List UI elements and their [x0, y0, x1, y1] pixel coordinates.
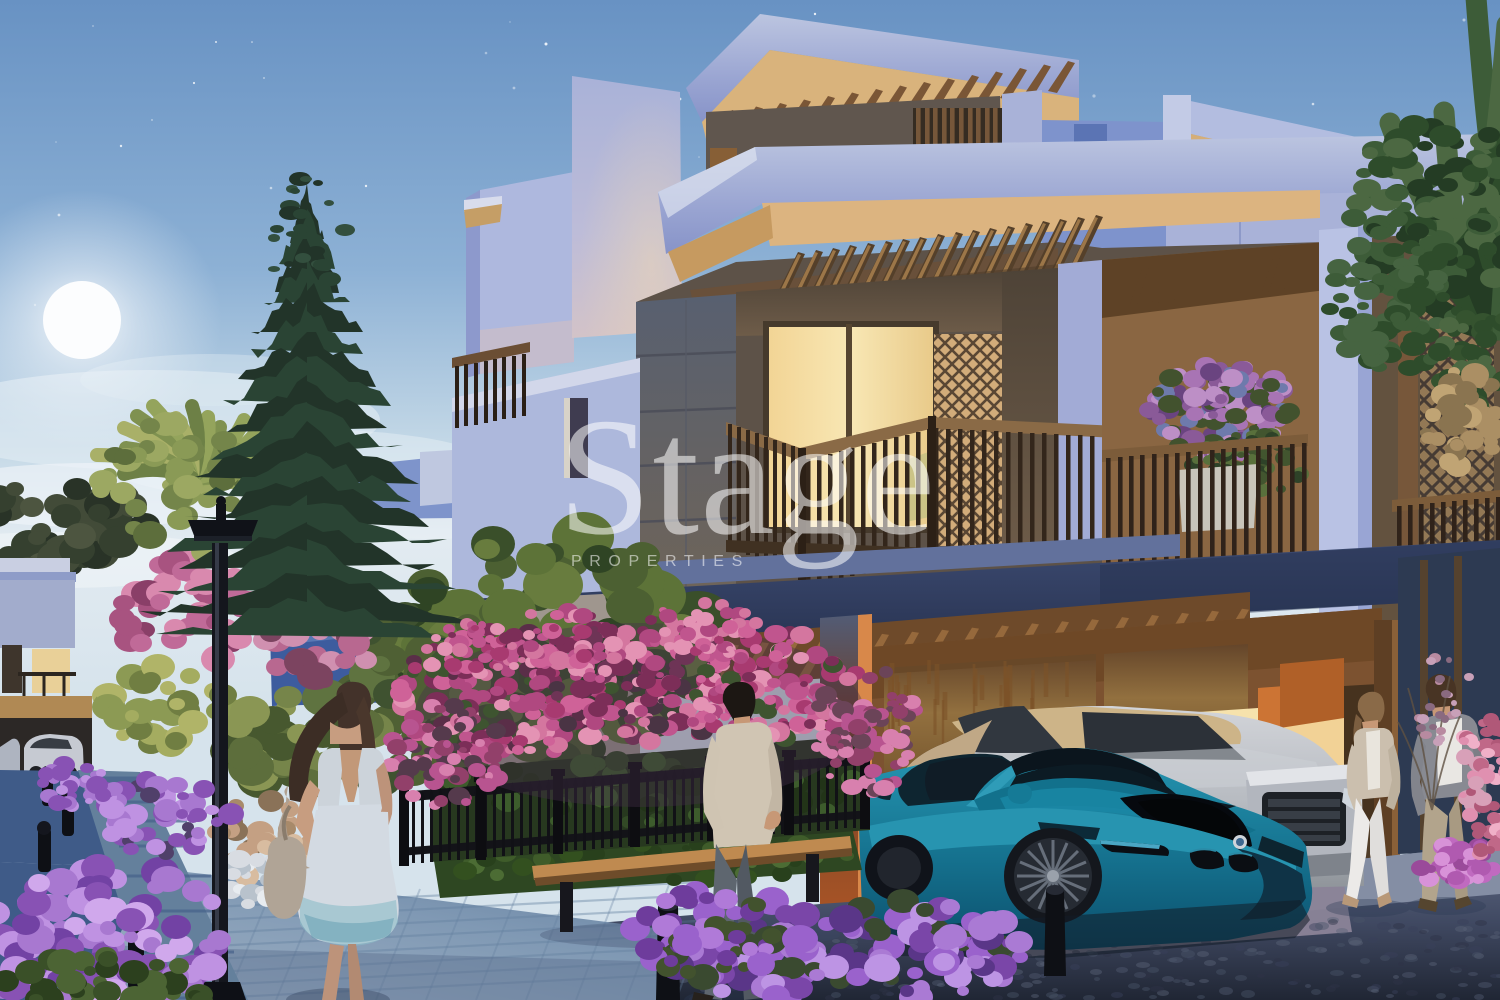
svg-text:PROPERTIES: PROPERTIES	[571, 553, 750, 570]
svg-text:Stage: Stage	[558, 384, 936, 570]
